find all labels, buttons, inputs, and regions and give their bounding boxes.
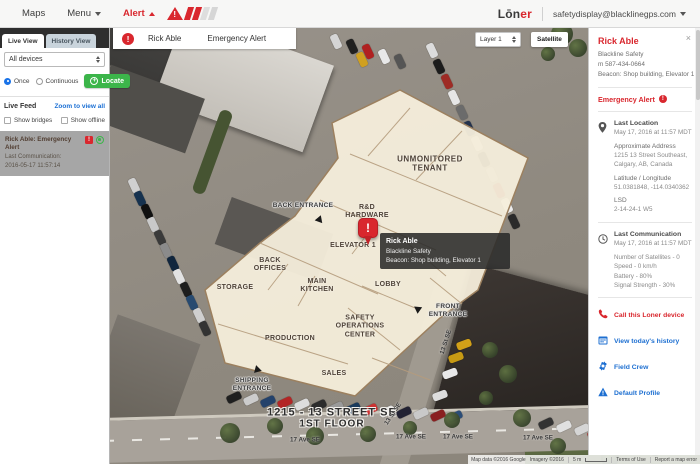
show-offline-checkbox[interactable]: Show offline — [61, 117, 105, 124]
show-bridges-checkbox[interactable]: Show bridges — [4, 117, 52, 124]
field-crew-label: Field Crew — [614, 364, 648, 371]
speed-value: Speed - 0 km/h — [614, 262, 700, 271]
close-icon[interactable]: × — [686, 34, 691, 43]
default-profile-label: Default Profile — [614, 390, 660, 397]
app-window: Maps Menu Alert ! Lōner safetydisplay@bl… — [0, 0, 700, 464]
alert-circle-icon: ! — [122, 33, 134, 45]
satellites-value: Number of Satellites - 0 — [614, 253, 700, 262]
scale-label: 5 m — [573, 457, 581, 463]
tooltip-beacon: Beacon: Shop building, Elevator 1 — [386, 256, 504, 265]
entrance-label-shipping: SHIPPING ENTRANCE — [221, 377, 283, 393]
signal-strength-value: Signal Strength - 30% — [614, 281, 700, 290]
address-line1: 1215 13 Street Southeast, — [614, 151, 700, 160]
warning-triangle-icon — [598, 384, 608, 402]
address-heading: Approximate Address — [614, 142, 700, 151]
panel-scrollbar[interactable] — [695, 28, 700, 455]
phone-icon — [598, 306, 608, 324]
last-location-time: May 17, 2016 at 11:57 MDT — [614, 128, 700, 137]
last-communication-section: Last Communication May 17, 2016 at 11:57… — [598, 230, 700, 291]
feed-alert-item[interactable]: Rick Able: Emergency Alert ! Last Commun… — [0, 131, 109, 176]
building-address-label: 1215 - 13 STREET SE 1ST FLOOR — [267, 407, 397, 430]
device-list-panel: Live View History View All devices Once … — [0, 28, 110, 464]
detail-org: Blackline Safety — [598, 50, 700, 60]
select-arrows-icon — [512, 36, 516, 43]
checkbox-icon — [4, 117, 11, 124]
device-tooltip: Rick Able Blackline Safety Beacon: Shop … — [380, 233, 510, 269]
street-label-17ave: 17 Ave SE — [523, 435, 553, 442]
map-type-toggle: Map Satellite — [531, 32, 568, 47]
chevron-up-icon — [149, 12, 155, 16]
banner-alert-type: Emergency Alert — [207, 34, 266, 43]
layer-select-value: Layer 1 — [480, 36, 502, 43]
last-location-section: Last Location May 17, 2016 at 11:57 MDT … — [598, 119, 700, 215]
street-label-17ave: 17 Ave SE — [396, 434, 426, 441]
chevron-down-icon — [680, 12, 686, 16]
call-device-action[interactable]: Call this Loner device — [598, 306, 700, 324]
entrance-label-back: BACK ENTRANCE — [272, 202, 334, 210]
latlng-heading: Latitude / Longitude — [614, 174, 700, 183]
live-feed-title: Live Feed — [4, 103, 36, 110]
device-filter-value: All devices — [9, 56, 42, 63]
account-menu[interactable]: safetydisplay@blacklinegps.com — [553, 9, 686, 19]
radio-once[interactable] — [4, 78, 11, 85]
checkbox-icon — [61, 117, 68, 124]
chevron-down-icon — [95, 12, 101, 16]
attribution-map-data: Map data ©2016 Google — [471, 457, 526, 463]
divider — [598, 87, 692, 88]
divider — [598, 297, 692, 298]
default-profile-action[interactable]: Default Profile — [598, 384, 700, 402]
clock-icon — [598, 230, 609, 291]
alert-map-pin[interactable]: ! — [358, 218, 378, 238]
divider — [0, 96, 109, 97]
call-device-label: Call this Loner device — [614, 312, 684, 319]
detail-device-name: Rick Able — [598, 36, 700, 46]
nav-menu[interactable]: Menu — [67, 8, 101, 19]
nav-alert[interactable]: Alert — [123, 8, 155, 19]
locate-button[interactable]: + Locate — [84, 74, 130, 88]
feed-alert-title: Rick Able: Emergency Alert — [5, 136, 85, 151]
location-pin-icon — [598, 119, 609, 215]
nav-menu-label: Menu — [67, 8, 91, 19]
street-label-17ave: 17 Ave SE — [443, 434, 473, 441]
room-label-safety-operations-center: SAFETY OPERATIONS CENTER — [325, 315, 395, 340]
room-label-storage: STORAGE — [217, 284, 254, 292]
alert-stripes-logo: ! — [167, 7, 216, 20]
detail-phone: m 587-434-0664 — [598, 60, 700, 70]
map-attribution: Map data ©2016 Google Imagery ©2016 5 m … — [468, 455, 700, 464]
lsd-value: 2-14-24-1 W5 — [614, 205, 700, 214]
plus-circle-icon: + — [90, 77, 98, 85]
emergency-alert-banner[interactable]: ! Rick Able Emergency Alert — [113, 28, 296, 49]
alert-circle-icon: ! — [659, 95, 667, 103]
latlng-value: 51.0381848, -114.0340362 — [614, 183, 700, 192]
last-location-title: Last Location — [614, 119, 700, 129]
calendar-icon — [598, 332, 608, 350]
feed-alert-timestamp: 2016-05-17 11:57:14 — [5, 163, 104, 171]
view-history-label: View today's history — [614, 338, 679, 345]
alert-status-row[interactable]: Emergency Alert ! — [598, 95, 700, 104]
radio-continuous-label: Continuous — [46, 78, 79, 85]
address-line2: Calgary, AB, Canada — [614, 160, 700, 169]
nav-maps[interactable]: Maps — [22, 8, 45, 19]
zoom-to-view-all-link[interactable]: Zoom to view all — [54, 103, 105, 110]
room-label-sales: SALES — [322, 370, 347, 378]
alert-status-label: Emergency Alert — [598, 95, 655, 104]
feed-alert-subtitle: Last Communication: — [5, 154, 104, 162]
divider — [598, 222, 692, 223]
alert-pin-exclamation: ! — [359, 219, 377, 237]
tab-history-view[interactable]: History View — [46, 34, 97, 48]
layer-select[interactable]: Layer 1 — [475, 32, 521, 47]
room-label-unmonitored-tenant: UNMONITORED TENANT — [380, 155, 480, 174]
show-offline-label: Show offline — [71, 117, 105, 124]
locate-button-label: Locate — [101, 78, 124, 85]
locate-target-icon[interactable] — [96, 136, 104, 144]
street-label-17ave: 17 Ave SE — [290, 437, 320, 444]
tooltip-org: Blackline Safety — [386, 247, 504, 256]
entrance-label-front: FRONT ENTRANCE — [419, 303, 477, 319]
select-arrows-icon — [96, 56, 100, 63]
field-crew-action[interactable]: Field Crew — [598, 358, 700, 376]
room-label-main-kitchen: MAIN KITCHEN — [293, 278, 341, 295]
device-detail-panel: × Rick Able Blackline Safety m 587-434-0… — [588, 28, 700, 455]
report-map-error-link[interactable]: Report a map error — [655, 457, 697, 463]
show-bridges-label: Show bridges — [14, 117, 52, 124]
scrollbar-thumb[interactable] — [696, 30, 700, 100]
view-tabs: Live View History View — [0, 28, 109, 48]
map-type-satellite-button[interactable]: Satellite — [531, 32, 568, 47]
account-email: safetydisplay@blacklinegps.com — [553, 9, 676, 19]
last-communication-time: May 17, 2016 at 11:57 MDT — [614, 239, 700, 248]
lsd-heading: LSD — [614, 196, 700, 205]
alert-badge-icon: ! — [85, 136, 93, 144]
last-communication-title: Last Communication — [614, 230, 700, 240]
tooltip-name: Rick Able — [386, 237, 504, 247]
attribution-imagery: Imagery ©2016 — [530, 457, 564, 463]
divider — [542, 7, 543, 21]
loner-logo: Lōner — [498, 7, 532, 21]
device-filter-select[interactable]: All devices — [4, 52, 105, 67]
warning-triangle-icon: ! — [167, 7, 183, 20]
battery-value: Battery - 80% — [614, 272, 700, 281]
room-label-back-offices: BACK OFFICES — [246, 257, 294, 274]
terms-of-use-link[interactable]: Terms of Use — [616, 457, 645, 463]
tab-live-view[interactable]: Live View — [2, 34, 44, 48]
view-history-action[interactable]: View today's history — [598, 332, 700, 350]
nav-alert-label: Alert — [123, 8, 145, 19]
room-label-lobby: LOBBY — [375, 281, 401, 289]
top-navigation-bar: Maps Menu Alert ! Lōner safetydisplay@bl… — [0, 0, 700, 28]
nav-maps-label: Maps — [22, 8, 45, 19]
scale-bar-icon — [585, 458, 607, 462]
detail-beacon: Beacon: Shop building, Elevator 1 — [598, 70, 700, 80]
radio-once-label: Once — [14, 78, 30, 85]
room-label-production: PRODUCTION — [265, 335, 315, 343]
banner-person-name: Rick Able — [148, 34, 181, 43]
divider — [598, 111, 692, 112]
gear-icon — [598, 358, 608, 376]
radio-continuous[interactable] — [36, 78, 43, 85]
